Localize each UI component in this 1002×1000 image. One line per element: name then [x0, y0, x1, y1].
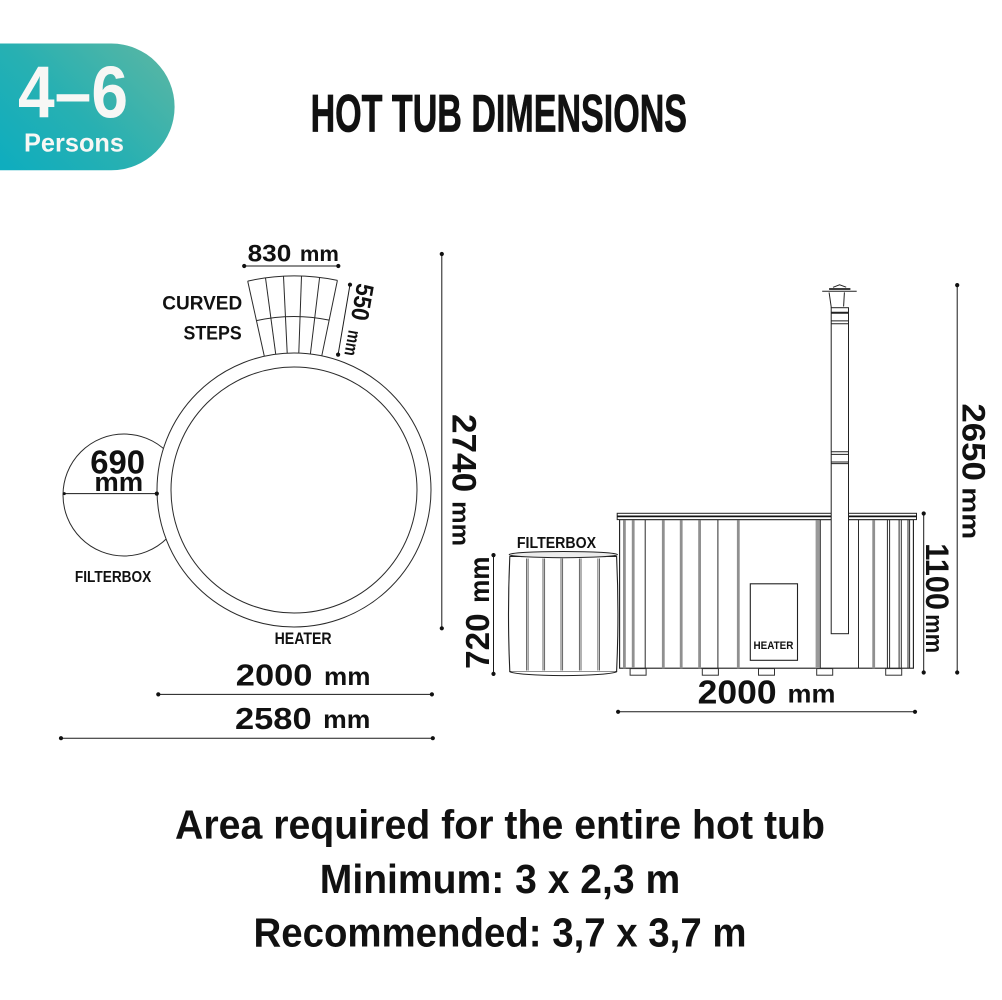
- svg-text:mm: mm: [788, 679, 836, 709]
- svg-text:HEATER: HEATER: [275, 629, 332, 648]
- svg-text:Recommended: 3,7 x 3,7 m: Recommended: 3,7 x 3,7 m: [254, 910, 747, 956]
- svg-text:mm: mm: [956, 487, 983, 539]
- svg-text:4–6: 4–6: [18, 50, 128, 133]
- svg-text:2000: 2000: [698, 673, 777, 710]
- svg-text:1100: 1100: [919, 543, 955, 610]
- svg-text:mm: mm: [447, 501, 474, 546]
- svg-text:2650: 2650: [955, 403, 991, 481]
- svg-text:Area required for the entire h: Area required for the entire hot tub: [175, 802, 825, 848]
- svg-text:mm: mm: [324, 664, 370, 691]
- svg-text:CURVED: CURVED: [162, 294, 242, 315]
- svg-text:mm: mm: [323, 707, 370, 734]
- svg-text:2580: 2580: [235, 701, 312, 736]
- svg-text:mm: mm: [300, 242, 339, 266]
- svg-text:mm: mm: [94, 466, 143, 497]
- svg-text:2740: 2740: [445, 414, 483, 492]
- svg-text:STEPS: STEPS: [184, 324, 242, 345]
- svg-text:HEATER: HEATER: [754, 640, 794, 652]
- svg-text:Persons: Persons: [24, 128, 124, 158]
- svg-text:mm: mm: [340, 329, 364, 358]
- svg-text:2000: 2000: [236, 658, 313, 693]
- svg-text:mm: mm: [920, 614, 947, 653]
- svg-text:FILTERBOX: FILTERBOX: [75, 569, 152, 586]
- svg-text:720: 720: [459, 613, 496, 669]
- svg-text:mm: mm: [464, 557, 495, 603]
- svg-text:830: 830: [248, 240, 292, 267]
- svg-text:HOT TUB DIMENSIONS: HOT TUB DIMENSIONS: [311, 85, 687, 144]
- svg-text:FILTERBOX: FILTERBOX: [517, 535, 597, 552]
- svg-text:Minimum: 3 x 2,3 m: Minimum: 3 x 2,3 m: [320, 856, 680, 902]
